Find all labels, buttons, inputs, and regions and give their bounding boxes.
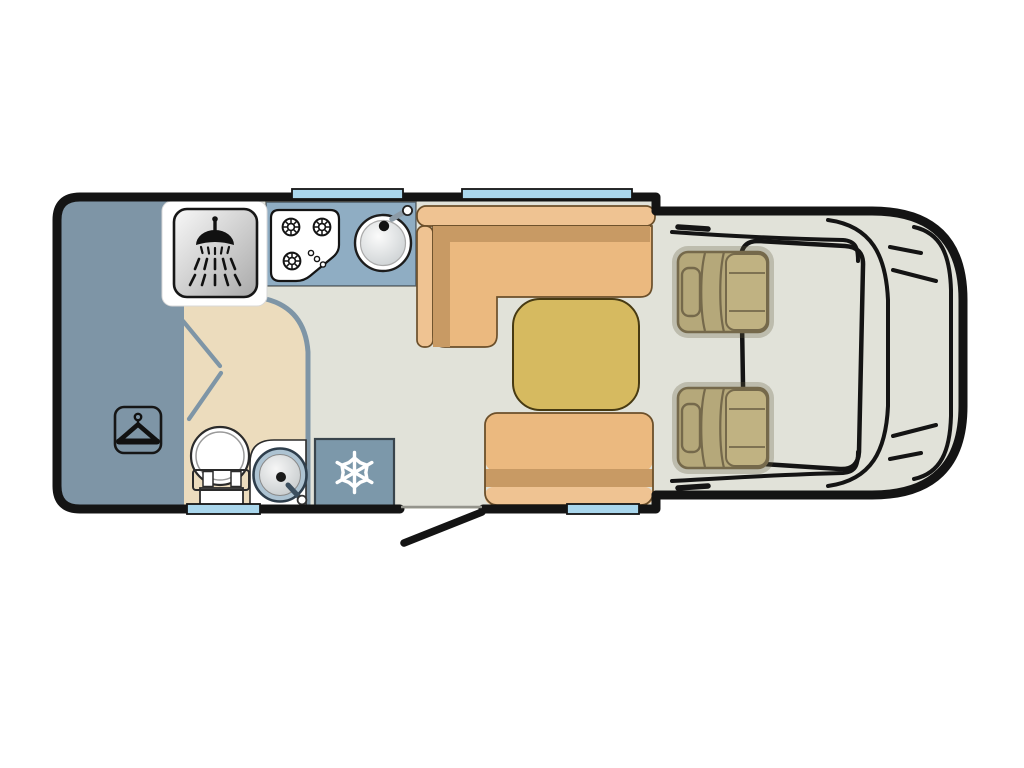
dinette-table [513, 299, 639, 410]
toilet-icon [191, 427, 249, 507]
cab-seat-passenger [672, 246, 774, 338]
motorhome-floorplan [0, 0, 1024, 768]
window-lounge [462, 189, 632, 199]
kitchen-counter [266, 202, 416, 286]
cab-seat-driver [672, 382, 774, 474]
window-washroom [187, 504, 260, 514]
mirror-bottom [678, 486, 708, 488]
fridge [315, 439, 394, 507]
shower-cubicle [162, 201, 267, 306]
entry-door-open [404, 512, 482, 543]
bench-seat [485, 413, 653, 505]
floorplan-canvas [0, 0, 1024, 768]
mirror-top [678, 227, 708, 229]
window-bench [567, 504, 639, 514]
window-kitchen [292, 189, 403, 199]
basin-icon [250, 440, 307, 507]
